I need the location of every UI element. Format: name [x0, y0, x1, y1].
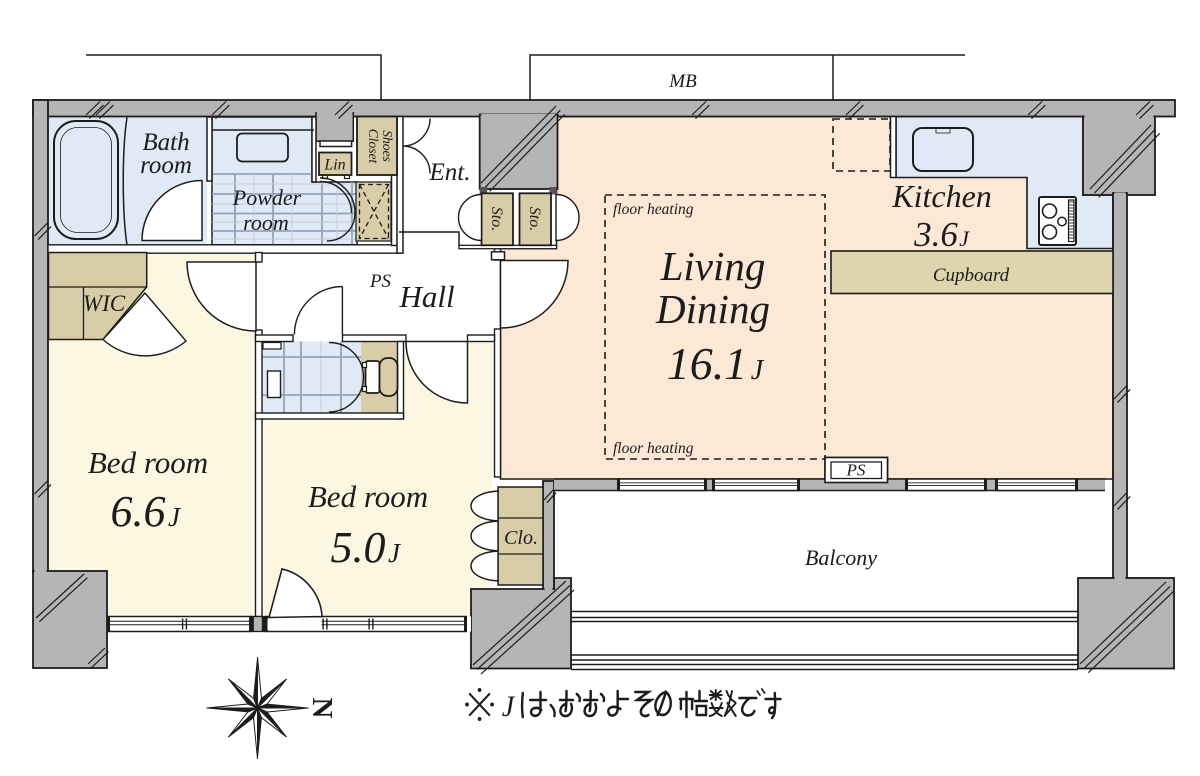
svg-text:PS: PS	[846, 461, 866, 480]
svg-text:Hall: Hall	[398, 279, 454, 314]
svg-text:N: N	[306, 698, 338, 719]
svg-text:Lin: Lin	[323, 157, 345, 174]
svg-text:Powder: Powder	[232, 185, 302, 210]
svg-text:Closet: Closet	[366, 129, 381, 165]
svg-text:PS: PS	[369, 271, 392, 292]
svg-text:Sto.: Sto.	[488, 207, 505, 231]
svg-text:room: room	[243, 210, 289, 235]
svg-text:Bed room: Bed room	[88, 445, 208, 480]
svg-text:J: J	[168, 502, 182, 532]
svg-text:J: J	[751, 355, 765, 386]
svg-text:J: J	[959, 226, 970, 251]
svg-text:WIC: WIC	[83, 291, 126, 316]
svg-text:Clo.: Clo.	[504, 527, 538, 549]
svg-text:6.6: 6.6	[111, 487, 166, 536]
svg-text:Bed room: Bed room	[308, 479, 428, 514]
svg-text:J: J	[502, 690, 515, 723]
svg-text:Ent.: Ent.	[429, 159, 471, 186]
svg-text:5.0: 5.0	[331, 523, 386, 572]
svg-text:floor heating: floor heating	[613, 201, 694, 218]
svg-text:Kitchen: Kitchen	[891, 178, 992, 214]
svg-text:Balcony: Balcony	[805, 545, 877, 570]
svg-text:floor heating: floor heating	[613, 440, 694, 457]
svg-text:MB: MB	[668, 71, 697, 92]
svg-text:3.6: 3.6	[913, 215, 958, 254]
svg-text:room: room	[140, 152, 192, 179]
svg-text:Dining: Dining	[655, 286, 770, 332]
svg-text:Shoes: Shoes	[380, 130, 395, 162]
svg-text:J: J	[388, 538, 402, 568]
svg-text:16.1: 16.1	[667, 338, 748, 389]
svg-text:Sto.: Sto.	[526, 207, 543, 231]
svg-text:Cupboard: Cupboard	[933, 265, 1010, 286]
svg-text:Living: Living	[660, 243, 766, 289]
